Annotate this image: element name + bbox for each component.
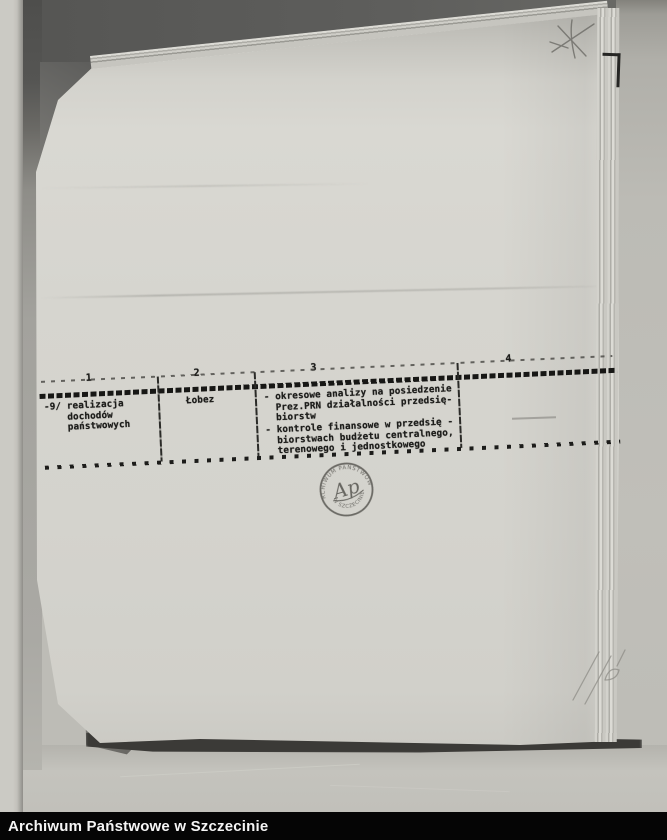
pencil-mark-top-right [548, 18, 604, 66]
pencil-mark-bottom-right [565, 638, 633, 714]
facing-page-edge [0, 0, 23, 812]
scanned-page-photo: 1 2 3 4 -9/ realizacja dochodów państwow… [0, 0, 667, 812]
header-dashed-rule-thin [41, 355, 613, 383]
archive-name-label: Archiwum Państwowe w Szczecinie [0, 818, 268, 835]
footer-caption-bar: Archiwum Państwowe w Szczecinie [0, 812, 667, 840]
cell-task-name: -9/ realizacja dochodów państwowych [44, 399, 131, 434]
corner-bracket-mark [601, 53, 620, 88]
underlying-surface-bottom [0, 745, 667, 812]
cell-location: Łobez [186, 395, 215, 407]
